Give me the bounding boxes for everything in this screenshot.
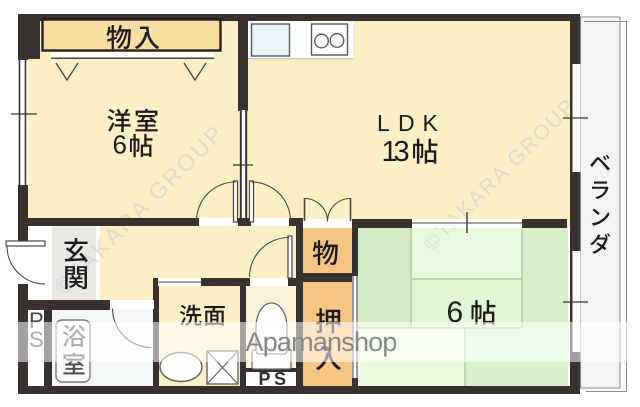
svg-text:L: L	[377, 110, 390, 136]
svg-text:D: D	[398, 110, 415, 136]
svg-text:P: P	[259, 369, 271, 389]
svg-text:S: S	[274, 369, 286, 389]
svg-text:6: 6	[113, 130, 127, 160]
svg-text:3: 3	[394, 136, 410, 168]
svg-text:K: K	[423, 110, 439, 136]
svg-text:Apamanshop: Apamanshop	[246, 327, 397, 357]
